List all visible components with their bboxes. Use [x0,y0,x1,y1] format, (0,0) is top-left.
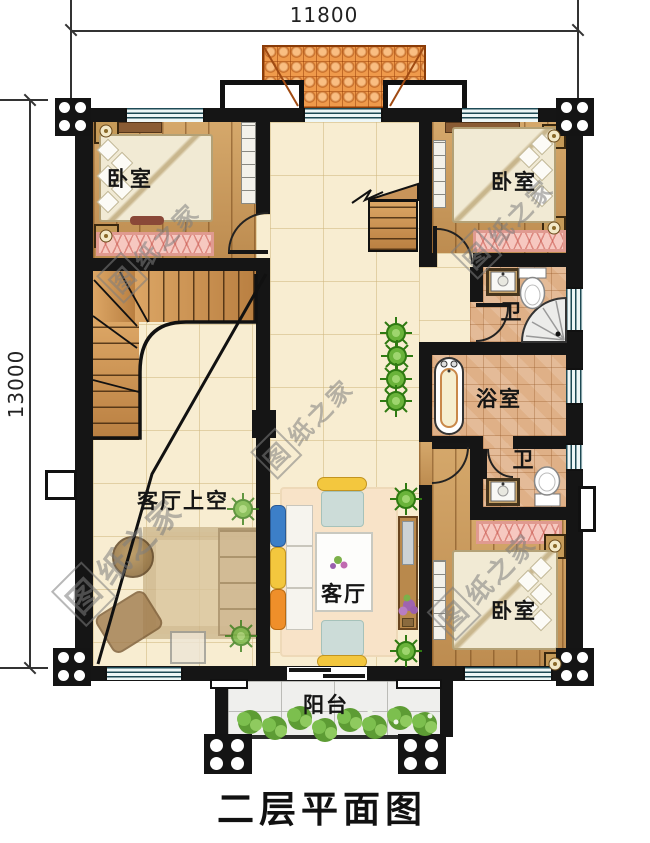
window-top-hall [303,108,383,122]
void-side-table [170,631,206,664]
wall-bedroom-br-left [419,485,432,666]
window-box-right [578,486,596,532]
floor-plan-sheet: 11800 13000 [0,0,650,843]
armchair-back-top [317,477,367,491]
window-bottom-left [105,667,183,680]
window-bottom-right [463,667,553,680]
column-top-right [556,98,594,136]
bathtub-basin [440,368,458,428]
extension-line-left-bottom [0,667,48,669]
dimension-line-left [29,100,31,668]
sink-vanity-toilet-top [486,268,520,296]
wall-toilet-top-bottom [419,342,566,355]
wall-balcony-left [215,681,228,737]
window-top-left [125,108,205,122]
armchair-seat-top [321,491,364,527]
balcony-column-left [204,734,252,774]
dimension-label-width: 11800 [290,3,359,27]
wall-toilet-bottom-left [470,449,483,507]
page-title: 二层平面图 [217,779,427,833]
label-balcony: 阳台 [303,689,349,719]
armchair-seat-bottom [321,620,364,656]
balcony-door-panel [323,674,365,678]
label-living-void: 客厅上空 [137,485,229,515]
wall-bedroom-tl-right [256,122,270,214]
balcony-door-panel [289,668,331,672]
sofa-cushion-yellow [270,547,286,589]
sofa-cushion-blue [270,505,286,547]
cabinet-mirror [402,521,414,565]
wall-toilet-bottom-bottom [470,507,566,520]
stair-hall-flight [368,200,418,252]
label-bedroom-top-right: 卧室 [491,166,537,196]
dimension-line-top [70,30,579,32]
wall-bathroom-left [419,355,432,442]
label-bedroom-top-left: 卧室 [107,163,153,193]
label-toilet-bottom: 卫 [513,444,536,474]
door-gap-toilet-bottom [483,436,513,449]
window-right-toilet-top [566,287,583,332]
window-right-bathroom [566,368,583,405]
extension-line-top-left [70,0,72,108]
wall-bedroom-tr-left [419,122,432,253]
wall-balcony-right [440,681,453,737]
cabinet-box [402,618,414,627]
window-right-toilet-bottom [566,443,583,471]
void-sofa [218,528,258,636]
extension-line-top-right [577,0,579,108]
balcony-column-right [398,734,446,774]
wardrobe-top-right [433,140,446,208]
label-living-room: 客厅 [321,578,367,608]
window-top-right [460,108,540,122]
sofa-cushion-orange [270,589,286,630]
window-box-left [45,470,77,500]
wardrobe-top-left [241,122,256,204]
extension-line-left-top [0,99,48,101]
balcony-tab-left [210,679,248,689]
column-top-left [55,98,91,136]
balcony-tab-right [396,679,442,689]
sofa-seats [286,505,313,630]
floor-hall-extension [419,267,470,342]
label-bedroom-bottom-right: 卧室 [491,595,537,625]
sink-vanity-toilet-bottom [486,478,520,506]
door-gap-bedroom-br [419,442,432,485]
label-toilet-top: 卫 [501,296,524,326]
column-bottom-right [556,648,594,686]
column-bottom-left [53,648,91,686]
stair-upper-run [133,271,256,322]
label-bathroom: 浴室 [476,383,522,413]
dimension-label-height: 13000 [4,350,28,419]
stair-left-run [93,322,139,440]
